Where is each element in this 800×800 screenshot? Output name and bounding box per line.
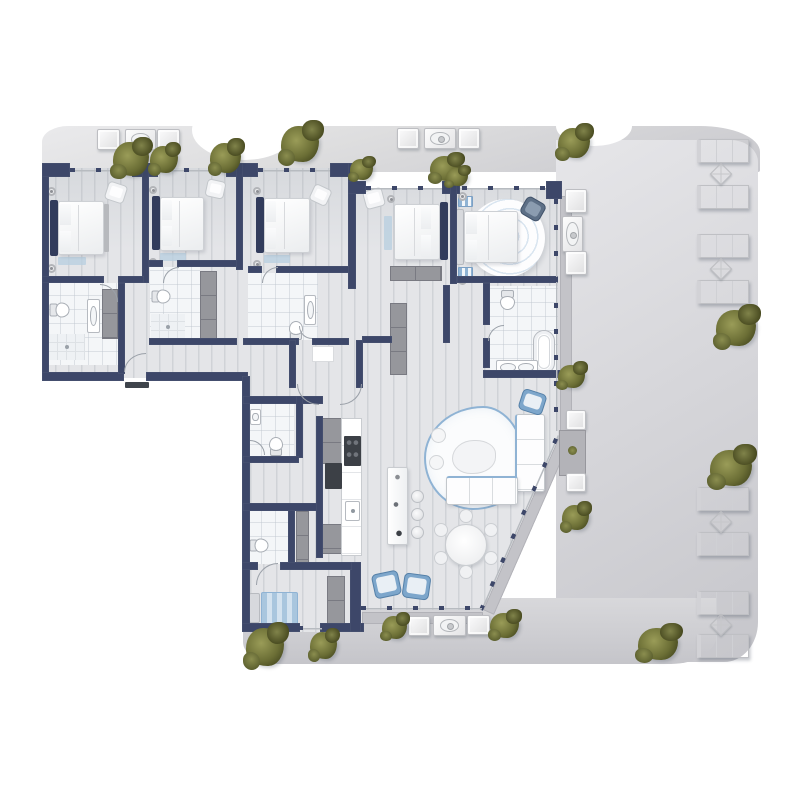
sun-lounger-8 (697, 634, 749, 658)
tree-10 (558, 365, 585, 388)
wall-br1-br2 (142, 163, 149, 283)
bedroom-1-headboard (50, 200, 58, 256)
wall-bath2-top-right (177, 260, 237, 267)
bedroom-1-rug (58, 257, 86, 265)
bedroom-1-bench (104, 204, 109, 252)
living-blue-armchair-3 (401, 572, 431, 601)
dining-chair-3 (484, 551, 498, 565)
bathroom-1-vanity (87, 299, 100, 333)
patio-chair-top-3 (397, 128, 419, 149)
patio-planter-table (559, 430, 586, 476)
wall-pier-1 (42, 163, 70, 177)
bathroom-2-toilet (152, 290, 171, 304)
window-master (462, 185, 546, 191)
kitchen-pantry (322, 418, 342, 464)
wall-mbath-left-lower (483, 338, 490, 368)
bedroom-3-headboard (256, 197, 264, 253)
wall-bath2-top-left (149, 260, 163, 267)
bathroom-1-toilet (50, 303, 70, 318)
living-coffee-table (452, 440, 496, 474)
kitchen-base-cabinet (322, 524, 342, 554)
dining-chair-1 (459, 509, 473, 523)
wall-maid-top-left (242, 562, 258, 570)
wall-bath1-right (118, 283, 125, 374)
dining-chair-4 (459, 565, 473, 579)
wall-wc1-bottom (243, 456, 299, 463)
wall-foyer-left (289, 340, 296, 388)
tree-14 (246, 628, 284, 666)
tree-4 (281, 126, 319, 162)
wall-hall-stub (362, 336, 392, 343)
bedroom-3-rug (264, 255, 290, 263)
wall-maid-top-right (280, 562, 352, 570)
dining-chair-2 (484, 523, 498, 537)
tree-2 (150, 146, 178, 173)
tree-8 (558, 128, 590, 158)
patio-chair-east-4 (566, 473, 586, 492)
tree-9 (716, 310, 756, 346)
living-pouf-1 (431, 428, 446, 443)
wall-wc1-right (296, 396, 303, 458)
wall-pier-7 (546, 181, 562, 199)
wall-mbath-left-upper (483, 283, 490, 325)
wall-bath3-bottom-right (312, 338, 349, 345)
patio-table-top-2 (424, 128, 456, 149)
maid-room-wardrobe (327, 576, 345, 626)
wall-dressing (443, 285, 450, 343)
wall-wc2-top (243, 503, 323, 511)
master-bed-pillows (466, 214, 477, 260)
tree-16 (382, 616, 407, 639)
kitchen-oven (325, 463, 342, 489)
patio-chair-east-1 (565, 189, 587, 213)
kitchen-cooktop (344, 436, 361, 466)
sun-lounger-3 (697, 234, 749, 258)
kitchen-island (387, 467, 408, 545)
bedroom-4-bed (394, 204, 440, 260)
bedroom-2-armchair (204, 178, 226, 200)
wall-bath1-top-left (42, 276, 104, 283)
living-sofa-horizontal (446, 476, 518, 505)
bedroom-2-headboard (152, 196, 160, 250)
wall-mbath-bottom (483, 370, 560, 378)
wall-left (42, 163, 49, 380)
tree-5 (350, 159, 373, 180)
tree-3 (210, 143, 241, 173)
maid-bed-headboard (249, 593, 260, 623)
bedroom-2-pillows (162, 200, 172, 246)
sun-lounger-7 (697, 591, 749, 615)
wall-bath3-top-right (276, 266, 349, 273)
sun-lounger-1 (697, 139, 749, 163)
wc-2-toilet (250, 539, 269, 553)
patio-chair-east-2 (565, 251, 587, 275)
window-right-glazing (553, 199, 559, 431)
wc-1-basin (250, 409, 261, 425)
bedroom-2-spotlight-a (149, 186, 157, 194)
entry-foyer-mat (312, 346, 334, 362)
master-bathroom-toilet (500, 290, 515, 310)
master-bed-headboard (456, 209, 464, 265)
tree-7 (446, 168, 468, 186)
floor-plan-canvas (0, 0, 800, 800)
bathroom-3-vanity (304, 295, 316, 325)
bedroom-3-spotlight-a (253, 187, 261, 195)
wall-wc2-right (288, 510, 295, 563)
wc-1-toilet (269, 437, 283, 456)
patio-table-south (433, 615, 466, 636)
sun-lounger-5 (697, 487, 749, 511)
bedroom-4-spotlight (387, 195, 395, 203)
window-living-bottom (361, 605, 482, 611)
wall-br4-master (450, 184, 457, 284)
wall-kitchen-back (316, 416, 323, 558)
bedroom-4-pillows (421, 207, 431, 257)
wc-2-floor (248, 511, 288, 564)
bedroom-3-pillows (266, 201, 276, 249)
maid-bed (261, 592, 298, 625)
sun-lounger-4 (697, 280, 749, 304)
wall-foyer-right (356, 340, 363, 388)
side-entrance-mat (125, 382, 149, 388)
wall-master-bottom (457, 276, 558, 283)
tree-15 (310, 632, 337, 659)
bedroom-4-rug (384, 216, 392, 250)
window-maid-room (298, 625, 322, 630)
wall-maid-right (350, 562, 361, 632)
wall-wing-bottom-right (146, 372, 248, 381)
patio-chair-south-2 (467, 615, 490, 635)
dressing-closet (390, 303, 407, 375)
bathroom-2-shower (151, 314, 185, 339)
bathroom-1-shower (49, 334, 85, 360)
hall-closet (296, 511, 309, 564)
terrace-right (556, 140, 758, 662)
window-bedroom-4 (366, 185, 442, 191)
tree-13 (638, 628, 678, 660)
bar-stool-1 (411, 490, 424, 503)
patio-chair-east-3 (566, 410, 586, 430)
bathroom-2-cabinet (200, 271, 217, 341)
wall-bath2-bottom (149, 338, 237, 345)
sun-lounger-6 (697, 532, 749, 556)
patio-table-east-1 (562, 216, 583, 252)
bedroom-4-headboard (440, 202, 448, 260)
bedroom-1-pillows (60, 204, 71, 252)
patio-chair-south-1 (408, 616, 430, 636)
living-pouf-2 (429, 455, 444, 470)
wall-wing-bottom-left (42, 372, 124, 381)
bar-stool-2 (411, 508, 424, 521)
wall-bath3-top-left (248, 266, 262, 273)
sun-lounger-2 (697, 185, 749, 209)
bar-stool-3 (411, 526, 424, 539)
wall-pier-5 (348, 181, 366, 194)
tree-17 (490, 613, 519, 638)
window-bedroom-3 (258, 167, 330, 173)
bedroom-4-wardrobe (390, 266, 442, 281)
dining-table (445, 524, 487, 566)
wall-bath1-top-right (118, 276, 144, 283)
patio-chair-top-4 (458, 128, 480, 149)
tree-11 (562, 505, 589, 530)
tree-12 (710, 450, 752, 486)
kitchen-sink (345, 501, 360, 521)
wall-br2-br3 (236, 163, 243, 270)
dining-chair-6 (434, 523, 448, 537)
dining-chair-5 (434, 551, 448, 565)
tree-1 (113, 142, 149, 176)
